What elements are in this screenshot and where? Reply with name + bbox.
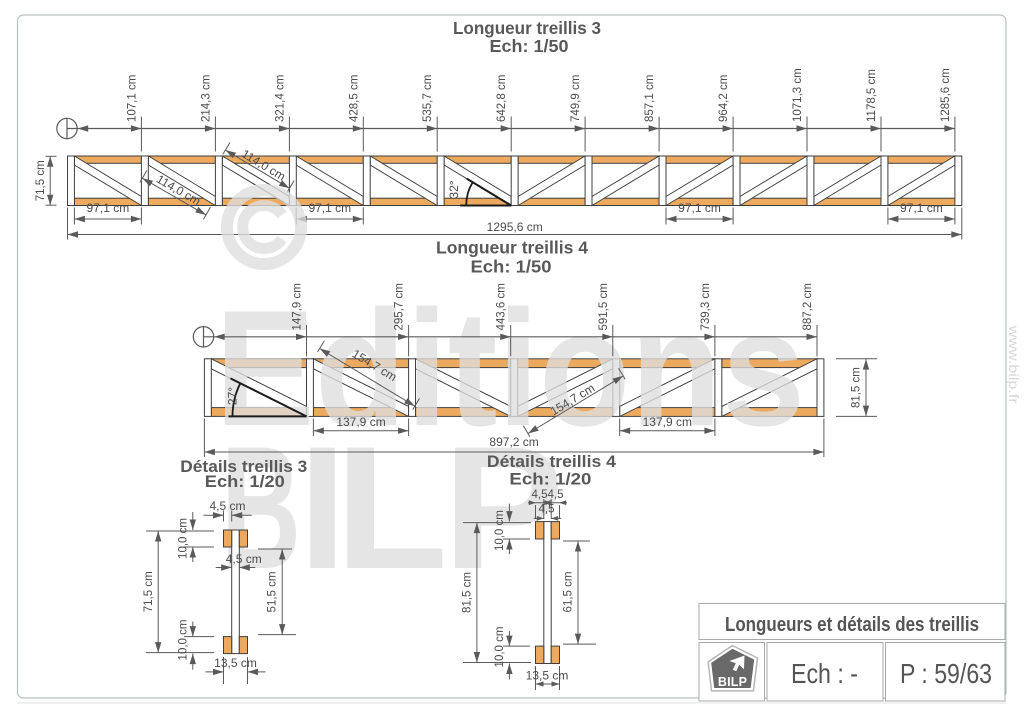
svg-text:Ech: 1/50: Ech: 1/50 — [490, 36, 569, 56]
svg-text:321,4 cm: 321,4 cm — [274, 75, 286, 122]
svg-text:Ech: 1/50: Ech: 1/50 — [471, 257, 552, 277]
svg-text:1178,5 cm: 1178,5 cm — [866, 69, 878, 122]
svg-text:137,9 cm: 137,9 cm — [336, 415, 385, 429]
svg-text:13,5 cm: 13,5 cm — [214, 656, 257, 670]
svg-text:www.bilp.fr: www.bilp.fr — [1006, 325, 1021, 405]
svg-text:81,5 cm: 81,5 cm — [461, 572, 473, 613]
svg-text:10,0 cm: 10,0 cm — [178, 620, 190, 661]
svg-text:Ech : -: Ech : - — [791, 658, 858, 689]
svg-text:443,6 cm: 443,6 cm — [496, 283, 508, 330]
svg-text:27°: 27° — [226, 387, 240, 405]
svg-text:Ech: 1/20: Ech: 1/20 — [509, 471, 591, 489]
svg-text:97,1 cm: 97,1 cm — [87, 201, 130, 215]
svg-text:97,1 cm: 97,1 cm — [308, 201, 351, 215]
svg-text:4,5 cm: 4,5 cm — [209, 499, 245, 513]
svg-text:71,5 cm: 71,5 cm — [143, 571, 155, 612]
svg-text:61,5 cm: 61,5 cm — [563, 572, 575, 613]
svg-text:887,2 cm: 887,2 cm — [802, 283, 814, 330]
svg-text:P : 59/63: P : 59/63 — [900, 658, 992, 689]
svg-text:Longueur treillis 4: Longueur treillis 4 — [436, 238, 588, 258]
svg-text:10,0 cm: 10,0 cm — [178, 518, 190, 559]
svg-text:428,5 cm: 428,5 cm — [348, 75, 360, 122]
svg-text:137,9 cm: 137,9 cm — [643, 415, 692, 429]
svg-text:107,1 cm: 107,1 cm — [126, 75, 138, 122]
svg-text:81,5 cm: 81,5 cm — [851, 367, 863, 408]
svg-text:Longueurs et détails des treil: Longueurs et détails des treillis — [725, 614, 979, 636]
svg-text:BILP: BILP — [718, 675, 747, 689]
svg-text:295,7 cm: 295,7 cm — [394, 283, 406, 330]
svg-text:4,5: 4,5 — [532, 489, 548, 501]
svg-text:749,9 cm: 749,9 cm — [570, 75, 582, 122]
svg-text:1295,6 cm: 1295,6 cm — [487, 220, 543, 234]
svg-text:739,3 cm: 739,3 cm — [700, 283, 712, 330]
svg-text:Ech: 1/20: Ech: 1/20 — [205, 473, 285, 491]
svg-text:13,5 cm: 13,5 cm — [526, 669, 569, 683]
svg-text:4,5 cm: 4,5 cm — [226, 552, 262, 566]
svg-text:10,0 cm: 10,0 cm — [494, 627, 506, 668]
svg-text:591,5 cm: 591,5 cm — [598, 283, 610, 330]
svg-text:4,5: 4,5 — [539, 504, 555, 516]
svg-text:642,8 cm: 642,8 cm — [496, 75, 508, 122]
svg-text:Longueur treillis 3: Longueur treillis 3 — [453, 18, 601, 38]
svg-text:10,0 cm: 10,0 cm — [494, 510, 506, 551]
svg-text:Détails treillis 4: Détails treillis 4 — [487, 453, 617, 471]
svg-text:1285,6 cm: 1285,6 cm — [940, 68, 952, 122]
svg-text:71,5 cm: 71,5 cm — [35, 160, 47, 201]
svg-text:147,9 cm: 147,9 cm — [292, 283, 304, 330]
svg-text:964,2 cm: 964,2 cm — [718, 75, 730, 122]
svg-text:L: L — [335, 411, 448, 606]
svg-text:535,7 cm: 535,7 cm — [422, 75, 434, 122]
svg-text:51,5 cm: 51,5 cm — [267, 572, 279, 613]
svg-text:1071,3 cm: 1071,3 cm — [792, 68, 804, 122]
svg-text:97,1 cm: 97,1 cm — [678, 201, 721, 215]
svg-text:897,2 cm: 897,2 cm — [489, 435, 538, 449]
svg-text:214,3 cm: 214,3 cm — [200, 75, 212, 122]
svg-text:97,1 cm: 97,1 cm — [900, 201, 943, 215]
svg-text:857,1 cm: 857,1 cm — [644, 75, 656, 122]
svg-text:32°: 32° — [447, 180, 461, 198]
svg-text:4,5: 4,5 — [548, 489, 564, 501]
